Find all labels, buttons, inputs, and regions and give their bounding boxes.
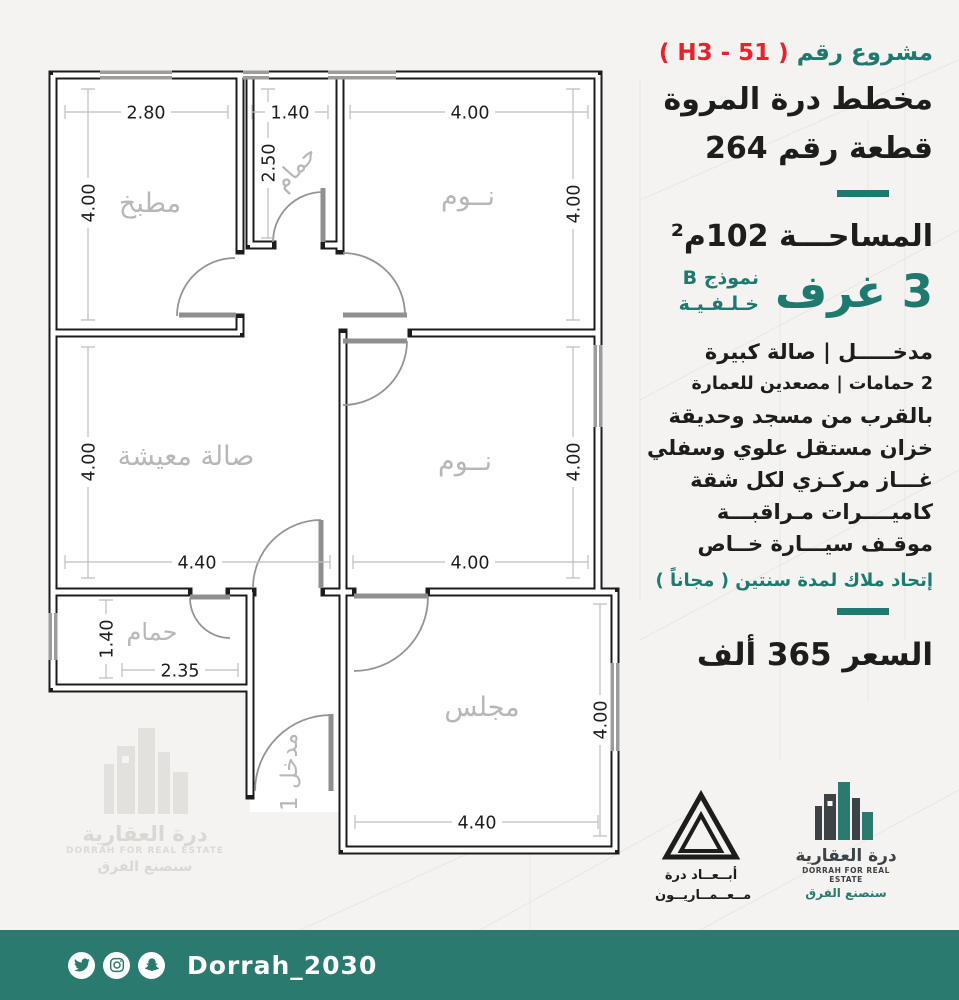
divider-top — [837, 190, 889, 197]
feature-item: بالقرب من مسجد وحديقة — [621, 401, 933, 433]
plot-number: قطعة رقم 264 — [621, 125, 933, 174]
features-list: مدخـــــل | صالة كبيرة 2 حمامات | مصعدين… — [621, 337, 933, 560]
dim-bed2-height: 4.00 — [565, 443, 585, 482]
room-label-living: صالة معيشة — [118, 441, 255, 472]
owners-union-note: إتحاد ملاك لمدة سنتين ( مجاناً ) — [621, 570, 933, 591]
dim-bed1-width: 4.00 — [451, 104, 490, 124]
feature-item: مدخـــــل | صالة كبيرة — [621, 337, 933, 369]
rooms-count: 3 غرف — [775, 269, 933, 314]
dorrah-buildings-icon — [815, 782, 877, 840]
dorrah-logo: درة العقارية DORRAH FOR REAL ESTATE سنصن… — [791, 782, 901, 900]
feature-item: غـــاز مركـزي لكل شقة — [621, 465, 933, 497]
feature-item: خزان مستقل علوي وسفلي — [621, 433, 933, 465]
price-text: السعر 365 ألف — [621, 637, 933, 673]
model-line1: نموذج B — [679, 266, 759, 292]
project-number-code: ( H3 - 51 ) — [659, 40, 789, 66]
info-panel: مشروع رقم ( H3 - 51 ) مخطط درة المروة قط… — [621, 40, 933, 673]
dim-bath2-width: 2.35 — [161, 662, 200, 682]
dim-kitchen-width: 2.80 — [127, 104, 166, 124]
project-number-label: مشروع رقم — [797, 40, 933, 66]
dorrah-name-ar: درة العقارية — [791, 846, 901, 866]
footer-bar: Dorrah_2030 — [0, 930, 959, 1000]
feature-item: موقـف سيـــارة خــاص — [621, 529, 933, 561]
dim-majlis-width: 4.40 — [458, 814, 497, 834]
dim-bath1-width: 1.40 — [271, 104, 310, 124]
dim-kitchen-height: 4.00 — [80, 184, 100, 223]
room-label-bath2: حمام — [127, 618, 178, 646]
model-line2: خـلـفـيـة — [679, 292, 759, 318]
instagram-icon[interactable] — [103, 952, 130, 979]
feature-item: كاميــــرات مـراقبـــة — [621, 497, 933, 529]
twitter-icon[interactable] — [68, 952, 95, 979]
flyer-canvas: درة العقارية DORRAH FOR REAL ESTATE سنصن… — [0, 0, 959, 1000]
room-label-kitchen: مطبخ — [119, 188, 181, 219]
room-label-bed2: نــوم — [438, 446, 492, 477]
room-label-entrance: مدخل 1 — [277, 733, 303, 811]
abaad-name-line1: أبــعــاد درة — [655, 866, 747, 886]
project-number-line: مشروع رقم ( H3 - 51 ) — [621, 40, 933, 66]
abaad-name-line2: مــعــمــاريــون — [655, 886, 747, 906]
feature-item: 2 حمامات | مصعدين للعمارة — [621, 369, 933, 401]
area-text: المساحـــة 102م² — [621, 219, 933, 254]
dim-living-height: 4.00 — [80, 443, 100, 482]
dorrah-slogan: سنصنع الفرق — [791, 886, 901, 900]
room-label-majlis: مجلس — [444, 692, 519, 723]
snapchat-icon[interactable] — [138, 952, 165, 979]
dim-majlis-height: 4.00 — [592, 701, 612, 740]
room-label-bed1: نــوم — [441, 181, 495, 212]
dim-living-width: 4.40 — [178, 554, 217, 574]
plan-title: مخطط درة المروة — [621, 76, 933, 125]
abaad-logo: أبــعــاد درة مــعــمــاريــون — [655, 790, 747, 905]
social-handle[interactable]: Dorrah_2030 — [187, 951, 377, 980]
abaad-triangle-icon — [661, 790, 741, 862]
dim-bed2-width: 4.00 — [451, 554, 490, 574]
divider-bottom — [837, 608, 889, 615]
dim-bath2-height: 1.40 — [98, 620, 118, 659]
model-block: نموذج B خـلـفـيـة — [679, 266, 759, 317]
dorrah-name-en: DORRAH FOR REAL ESTATE — [791, 866, 901, 884]
dim-bed1-height: 4.00 — [565, 185, 585, 224]
rooms-row: 3 غرف نموذج B خـلـفـيـة — [621, 266, 933, 317]
floor-plan: 2.80 4.00 1.40 2.50 4.00 4.00 4.00 4.40 … — [0, 0, 660, 912]
